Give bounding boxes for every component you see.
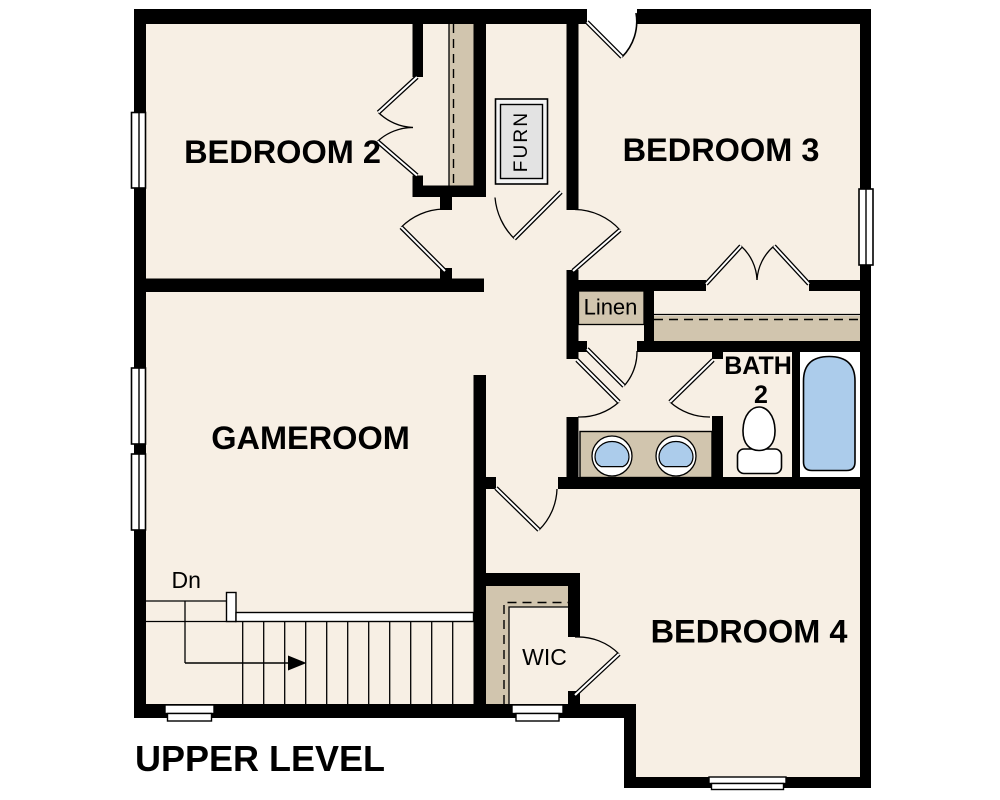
svg-text:UPPER LEVEL: UPPER LEVEL bbox=[135, 738, 385, 779]
svg-text:BEDROOM 3: BEDROOM 3 bbox=[623, 132, 820, 168]
svg-text:FURN: FURN bbox=[511, 111, 532, 173]
svg-text:2: 2 bbox=[754, 381, 768, 409]
svg-text:BEDROOM 4: BEDROOM 4 bbox=[651, 614, 848, 650]
svg-text:Dn: Dn bbox=[172, 567, 201, 593]
svg-text:WIC: WIC bbox=[522, 644, 567, 670]
svg-text:BEDROOM 2: BEDROOM 2 bbox=[184, 134, 381, 170]
svg-text:Linen: Linen bbox=[584, 295, 638, 320]
svg-text:GAMEROOM: GAMEROOM bbox=[211, 420, 410, 456]
svg-text:BATH: BATH bbox=[724, 352, 792, 380]
